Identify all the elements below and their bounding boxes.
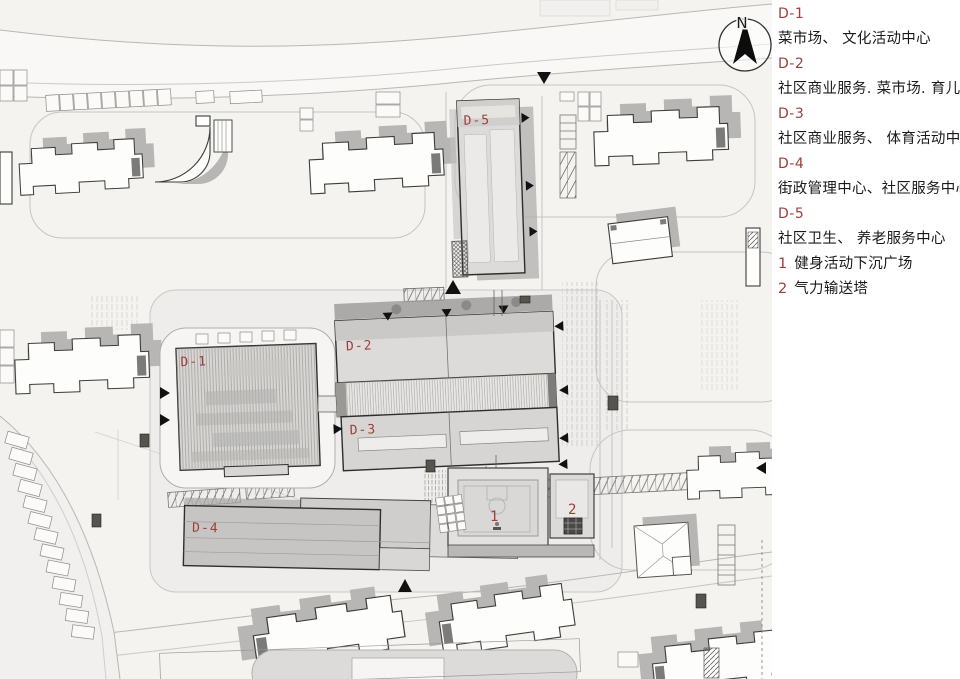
legend-code-d5: D-5 xyxy=(778,202,958,227)
legend-num-1: 1 xyxy=(778,256,787,272)
spot1-label: 1 xyxy=(490,509,498,525)
legend-desc-d2: 社区商业服务. 菜市场. 育儿园 xyxy=(778,77,958,102)
legend-item-2: 2气力输送塔 xyxy=(778,277,958,302)
legend-code-d3: D-3 xyxy=(778,102,958,127)
legend-label-2: 气力输送塔 xyxy=(794,281,868,297)
legend-code-d2: D-2 xyxy=(778,52,958,77)
north-letter: N xyxy=(736,14,747,32)
d4-label: D-4 xyxy=(192,521,219,537)
hip-roof-pavilion xyxy=(633,514,700,578)
spot2-label: 2 xyxy=(568,502,576,518)
legend: D-1 菜市场、 文化活动中心 D-2 社区商业服务. 菜市场. 育儿园 D-3… xyxy=(778,2,958,302)
building-d2-d3: D-2 D-3 xyxy=(328,294,571,479)
legend-code-d4: D-4 xyxy=(778,152,958,177)
d2-label: D-2 xyxy=(346,338,373,354)
legend-desc-d3: 社区商业服务、 体育活动中心 xyxy=(778,127,958,152)
pneumatic-tower: 2 xyxy=(550,474,594,538)
site-plan-page: D-1 D-2 D-3 xyxy=(0,0,960,679)
legend-desc-d4: 街政管理中心、社区服务中心 xyxy=(778,177,958,202)
d5-label: D-5 xyxy=(463,113,490,129)
legend-desc-d5: 社区卫生、 养老服务中心 xyxy=(778,227,958,252)
building-d5: D-5 xyxy=(447,98,539,281)
legend-label-1: 健身活动下沉广场 xyxy=(794,256,912,272)
small-building-right xyxy=(607,207,681,264)
legend-desc-d1: 菜市场、 文化活动中心 xyxy=(778,27,958,52)
d1-label: D-1 xyxy=(180,354,207,370)
building-d1: D-1 xyxy=(160,328,335,488)
legend-code-d1: D-1 xyxy=(778,2,958,27)
d3-label: D-3 xyxy=(349,422,376,438)
legend-item-1: 1健身活动下沉广场 xyxy=(778,252,958,277)
legend-num-2: 2 xyxy=(778,281,787,297)
utility-box xyxy=(560,92,574,101)
